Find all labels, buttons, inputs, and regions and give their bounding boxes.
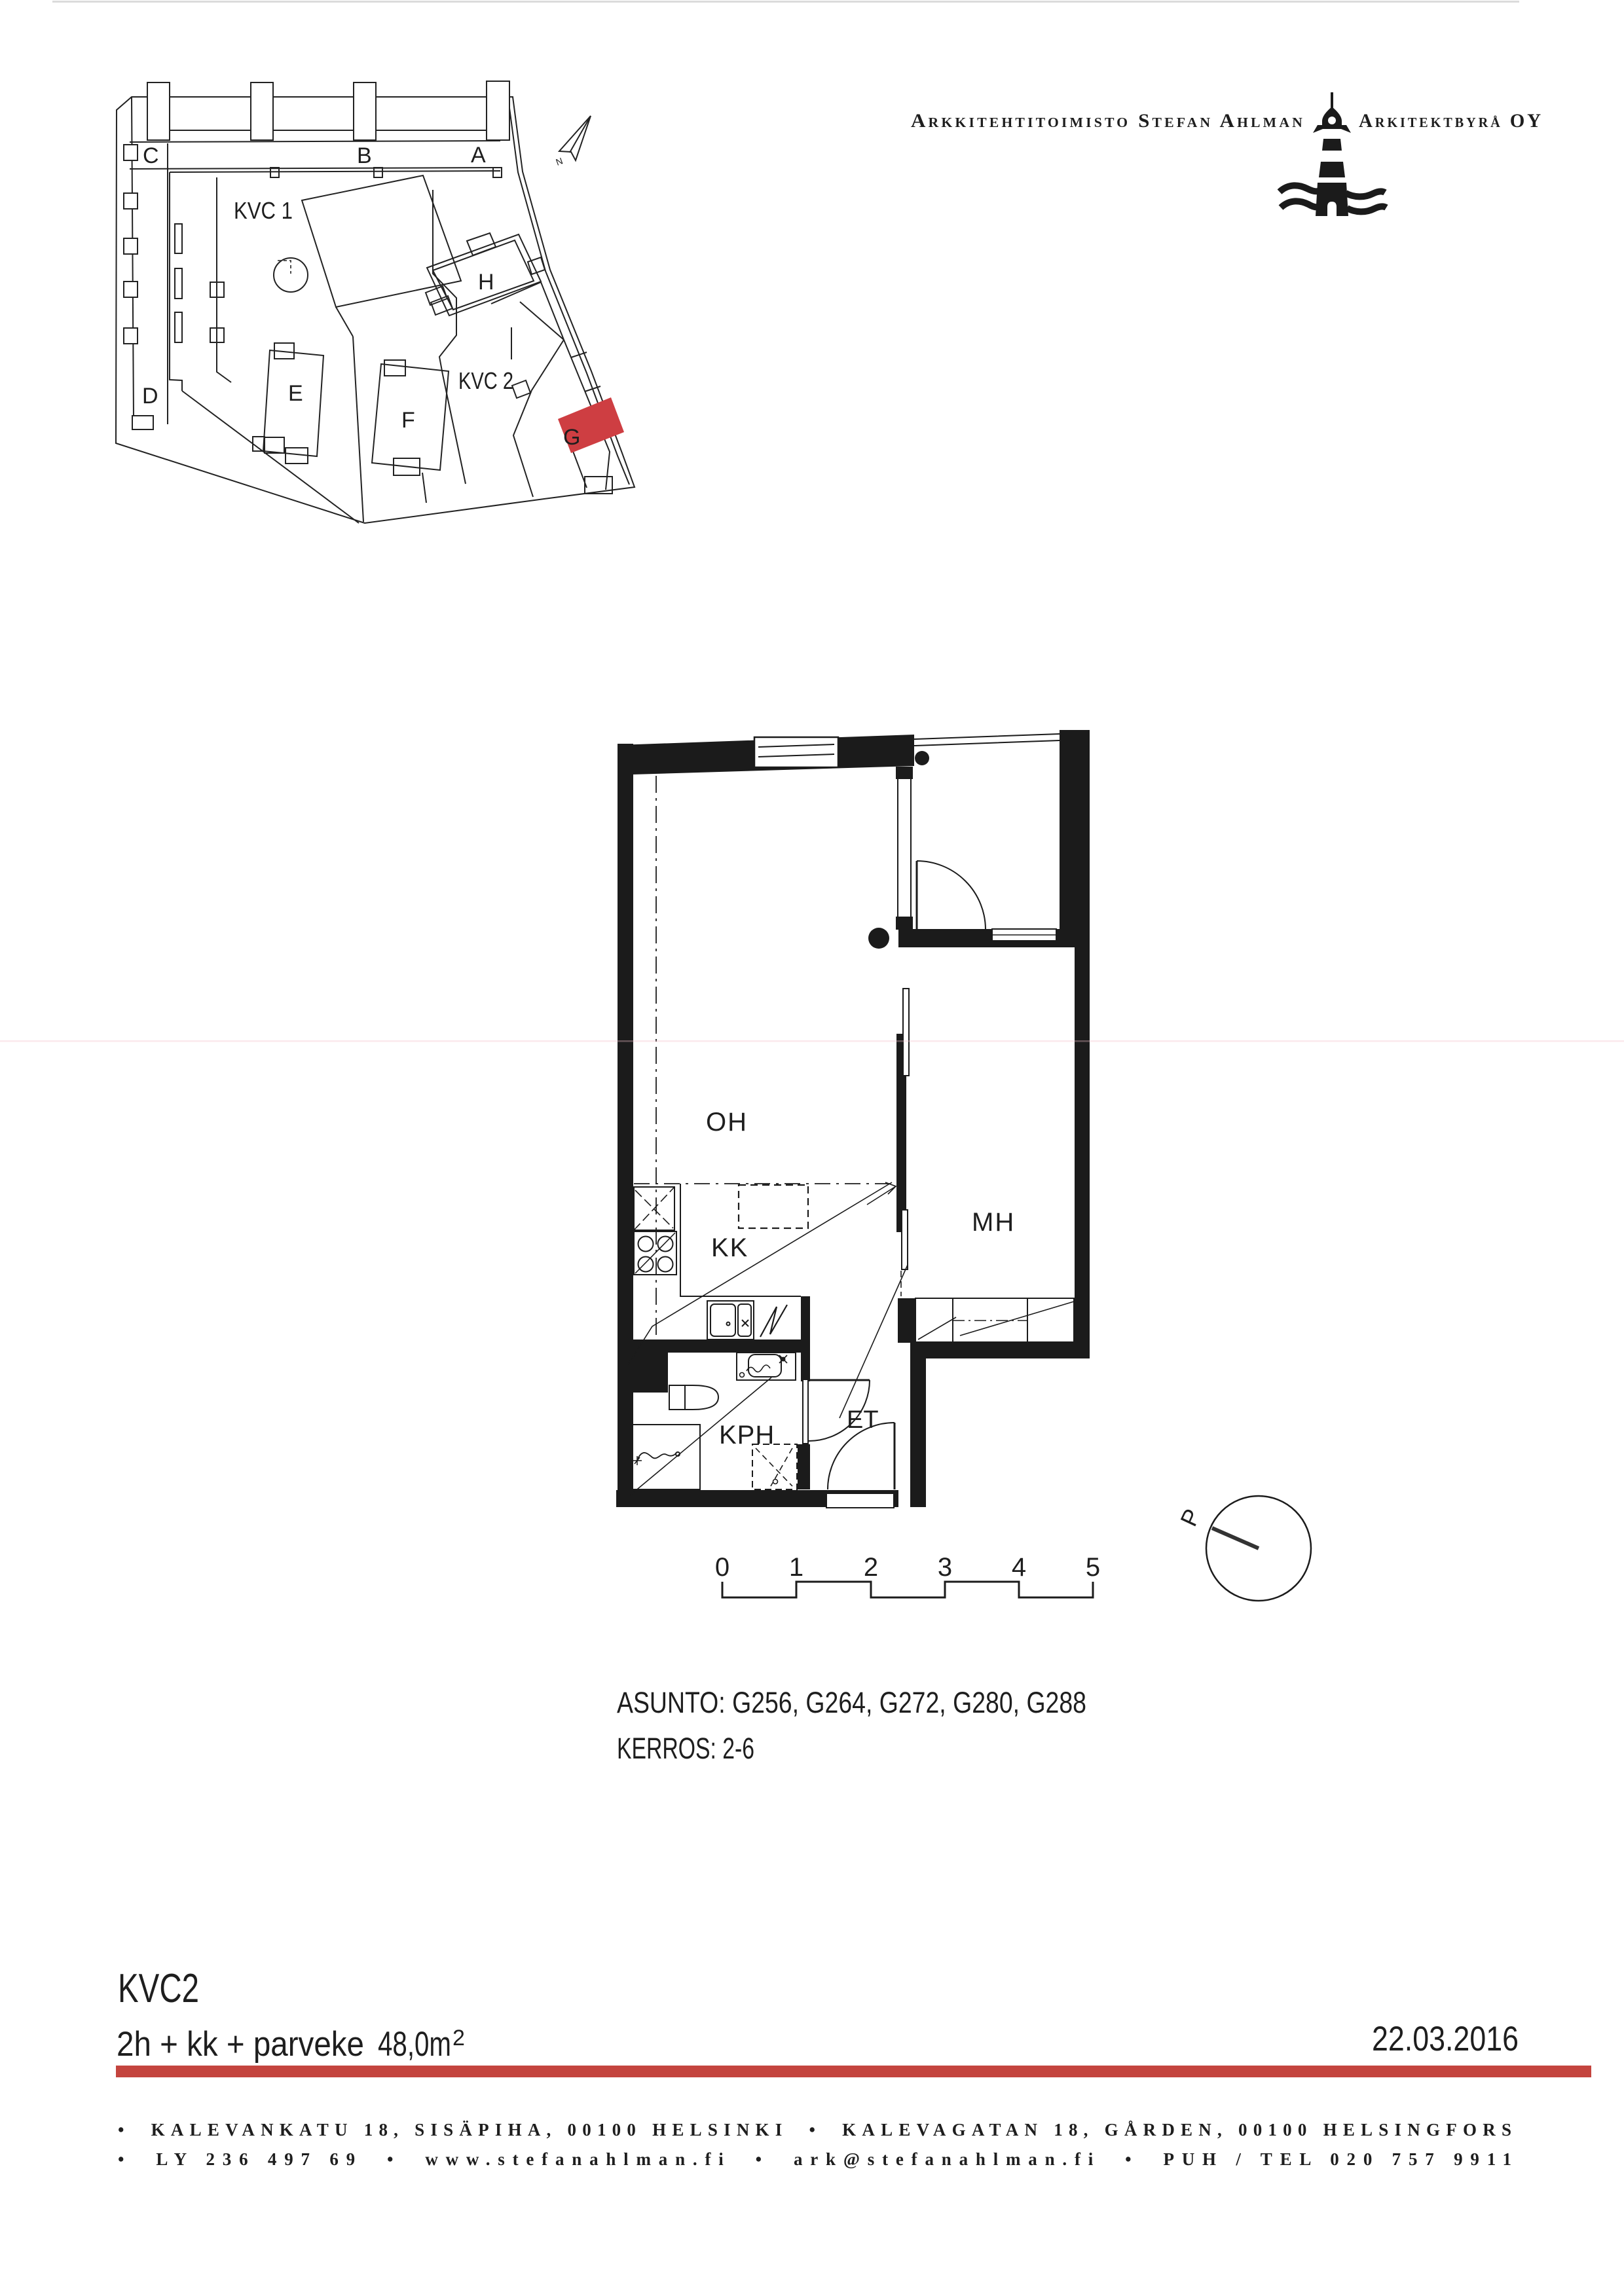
svg-text:Arkkitehtitoimisto Stefan Ahlm: Arkkitehtitoimisto Stefan Ahlman: [911, 110, 1305, 132]
svg-text:2h + kk + parveke: 2h + kk + parveke: [117, 2025, 364, 2064]
svg-text:F: F: [401, 408, 415, 433]
svg-text:A: A: [471, 143, 486, 168]
svg-text:KPH: KPH: [719, 1421, 775, 1449]
svg-text:3: 3: [938, 1553, 952, 1582]
svg-text:• KALEVANKATU 18, SISÄPIHA, 0: • KALEVANKATU 18, SISÄPIHA, 00100 HELSIN…: [118, 2120, 1511, 2140]
svg-text:22.03.2016: 22.03.2016: [1372, 2020, 1519, 2058]
svg-text:4: 4: [1012, 1553, 1026, 1582]
svg-text:5: 5: [1086, 1553, 1100, 1582]
svg-text:ASUNTO: G256, G264, G272, G280: ASUNTO: G256, G264, G272, G280, G288: [617, 1686, 1086, 1719]
svg-text:B: B: [357, 143, 372, 168]
svg-text:2: 2: [452, 2026, 465, 2050]
svg-text:MH: MH: [972, 1208, 1015, 1237]
svg-text:48,0m: 48,0m: [378, 2025, 451, 2064]
svg-text:2: 2: [864, 1553, 878, 1582]
svg-text:Arkitektbyrå OY: Arkitektbyrå OY: [1359, 110, 1543, 132]
svg-text:KVC 1: KVC 1: [234, 197, 293, 224]
svg-text:KVC2: KVC2: [118, 1966, 199, 2011]
svg-text:G: G: [563, 425, 580, 450]
svg-text:1: 1: [789, 1553, 803, 1582]
svg-text:P: P: [1175, 1504, 1206, 1530]
svg-text:• LY 236 497 69 • www.stefa: • LY 236 497 69 • www.stefanahlman.fi • …: [118, 2149, 1511, 2169]
svg-text:0: 0: [715, 1553, 729, 1582]
svg-text:H: H: [478, 270, 494, 295]
svg-text:ET: ET: [847, 1406, 879, 1434]
svg-text:KERROS: 2-6: KERROS: 2-6: [617, 1732, 754, 1765]
svg-text:N: N: [555, 155, 564, 167]
svg-text:C: C: [143, 143, 159, 168]
svg-text:OH: OH: [706, 1108, 748, 1137]
svg-text:D: D: [142, 384, 158, 409]
svg-text:KVC 2: KVC 2: [458, 367, 513, 394]
svg-text:KK: KK: [711, 1233, 748, 1262]
svg-text:E: E: [288, 381, 303, 406]
